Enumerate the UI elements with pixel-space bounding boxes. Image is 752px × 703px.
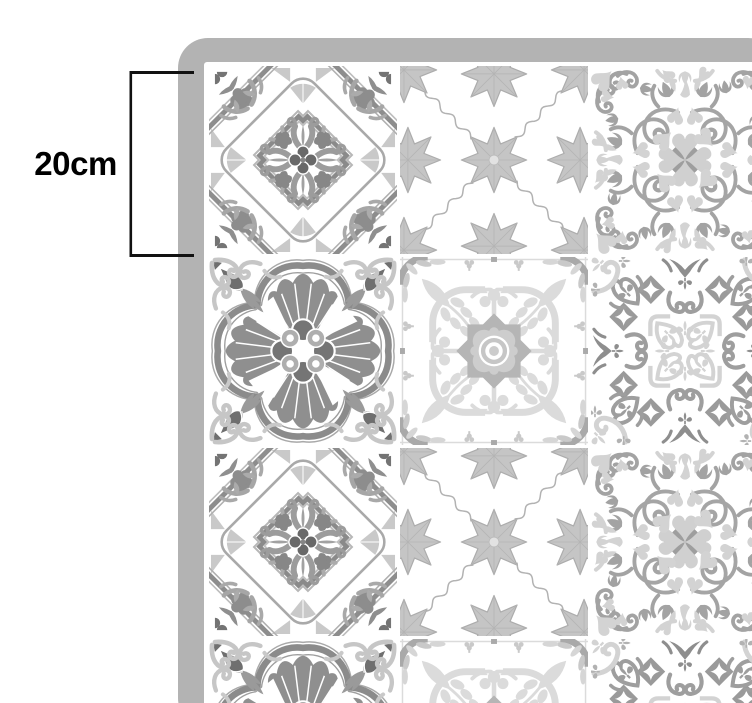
svg-text:20cm: 20cm [34, 145, 117, 182]
